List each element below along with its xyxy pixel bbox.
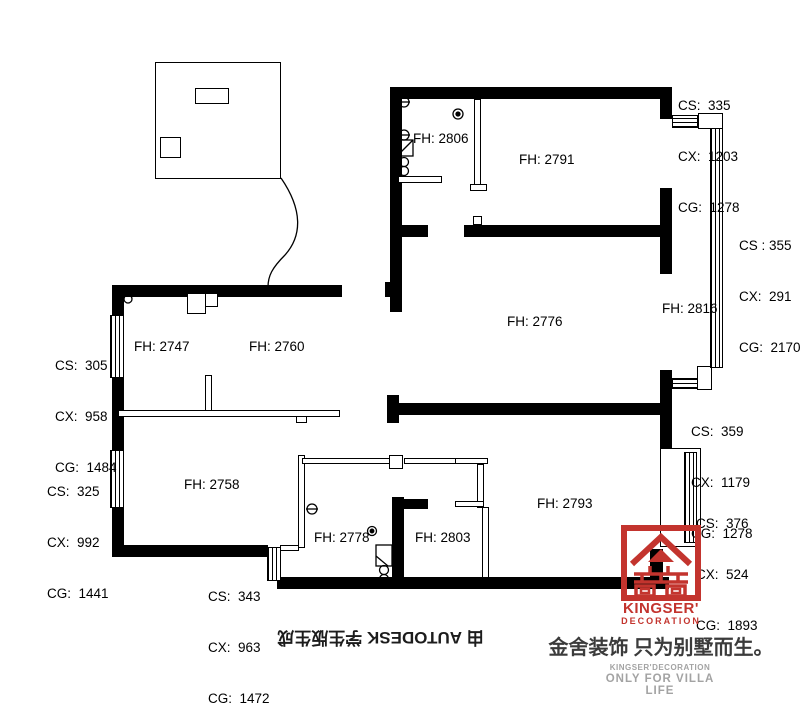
dim-line: CG: 1472 — [208, 690, 270, 707]
thin-wall — [474, 99, 481, 185]
brand-footer-en-1: KINGSER'DECORATION — [598, 663, 722, 672]
dim-line: CX: 524 — [696, 566, 758, 583]
thin-wall — [195, 88, 229, 104]
thin-wall — [389, 455, 403, 469]
thin-wall — [473, 216, 482, 225]
wall-segment — [398, 403, 662, 415]
wall-segment — [660, 87, 672, 119]
dim-line: CS: 359 — [691, 423, 753, 440]
wall-segment — [464, 225, 664, 237]
dim-line: CG: 2170 — [739, 339, 800, 356]
wall-segment — [390, 87, 672, 99]
thin-wall — [187, 293, 206, 314]
leader-curve — [268, 178, 298, 287]
thin-wall — [160, 137, 181, 158]
thin-wall — [455, 501, 484, 507]
thin-wall — [398, 176, 442, 183]
brand-name: KINGSER' — [618, 600, 704, 617]
brand-footer-en-2: ONLY FOR VILLA LIFE — [590, 673, 730, 697]
dim-line: CX: 1203 — [678, 148, 740, 165]
room-label-fh2806: FH: 2806 — [413, 131, 469, 146]
room-label-fh2778: FH: 2778 — [314, 530, 370, 545]
dim-line: CS : 355 — [739, 237, 800, 254]
brand-subtitle: DECORATION — [616, 616, 706, 626]
room-label-fh2760: FH: 2760 — [249, 339, 305, 354]
wall-segment — [390, 87, 402, 312]
dim-line: CG: 1278 — [678, 199, 740, 216]
wall-segment — [112, 285, 342, 297]
thin-wall — [482, 507, 489, 578]
wall-segment — [277, 577, 669, 589]
dim-line: CX: 291 — [739, 288, 800, 305]
dim-group-right-upper: CS : 355 CX: 291 CG: 2170 — [739, 203, 800, 390]
room-label-fh2791: FH: 2791 — [519, 152, 575, 167]
thin-wall — [155, 62, 281, 179]
dim-line: CS: 376 — [696, 515, 758, 532]
room-label-fh2816: FH: 2816 — [662, 301, 718, 316]
wall-segment — [392, 497, 404, 589]
wall-segment — [385, 282, 394, 297]
room-label-fh2793: FH: 2793 — [537, 496, 593, 511]
dim-line: CS: 325 — [47, 483, 109, 500]
dim-line: CX: 958 — [55, 408, 117, 425]
thin-wall — [280, 545, 299, 551]
thin-wall — [205, 293, 218, 307]
wall-segment — [112, 285, 124, 315]
wall-segment — [402, 225, 428, 237]
autodesk-stamp: 由 AUTODESK 学生版生成 — [253, 627, 508, 652]
dim-line: CG: 1441 — [47, 585, 109, 602]
dim-line: CS: 305 — [55, 357, 117, 374]
thin-wall — [298, 455, 305, 548]
dim-line: CX: 992 — [47, 534, 109, 551]
room-label-fh2747: FH: 2747 — [134, 339, 190, 354]
thin-wall — [697, 366, 712, 390]
dim-line: CS: 343 — [208, 588, 270, 605]
room-label-fh2776: FH: 2776 — [507, 314, 563, 329]
wall-segment — [404, 499, 428, 509]
thin-wall — [302, 458, 391, 464]
thin-wall — [296, 416, 307, 423]
thin-wall — [404, 458, 457, 464]
thin-wall — [205, 375, 212, 411]
room-label-fh2758: FH: 2758 — [184, 477, 240, 492]
kingser-logo-icon — [620, 524, 702, 602]
room-label-fh2803: FH: 2803 — [415, 530, 471, 545]
dim-group-top-right: CS: 335 CX: 1203 CG: 1278 — [678, 63, 740, 250]
window — [672, 378, 698, 389]
dim-line: CS: 335 — [678, 97, 740, 114]
brand-tagline-cn: 金舍装饰 只为别墅而生。 — [543, 631, 779, 660]
thin-wall — [470, 184, 487, 191]
dim-group-left-lower: CS: 325 CX: 992 CG: 1441 — [47, 449, 109, 636]
floor-plan-canvas: FH: 2806 FH: 2791 FH: 2776 FH: 2816 FH: … — [0, 0, 800, 707]
